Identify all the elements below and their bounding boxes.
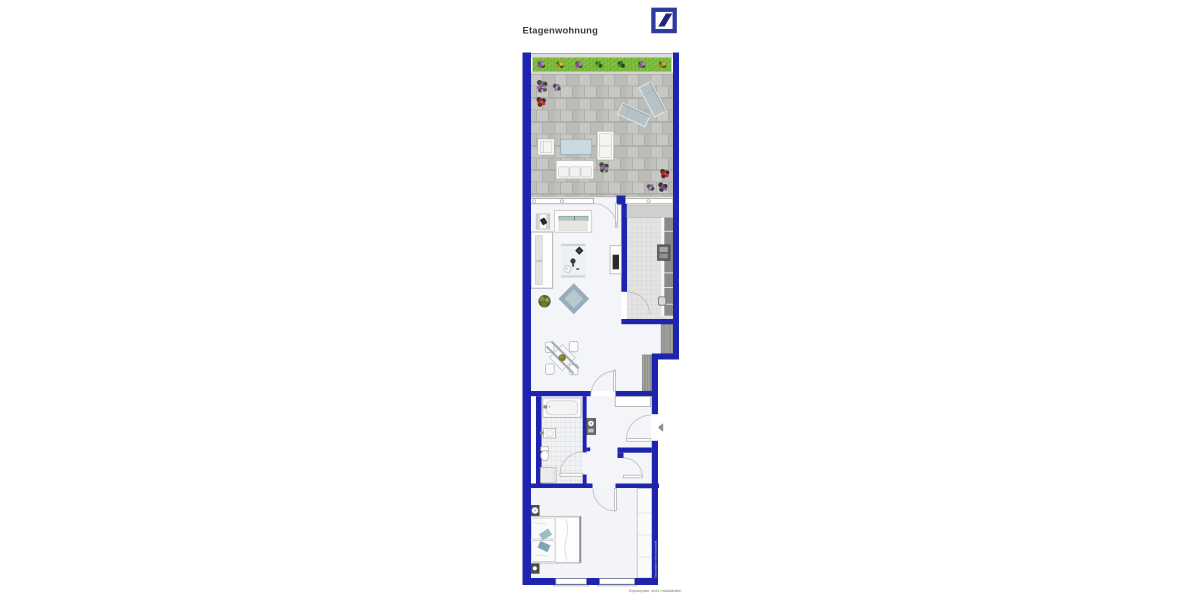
svg-text:Exposeplan, nicht maßstäblich: Exposeplan, nicht maßstäblich [629,588,682,593]
svg-text:Exposeplan nicht massstabl.: Exposeplan nicht massstabl. [654,540,658,578]
svg-text:Etagenwohnung: Etagenwohnung [523,24,599,35]
